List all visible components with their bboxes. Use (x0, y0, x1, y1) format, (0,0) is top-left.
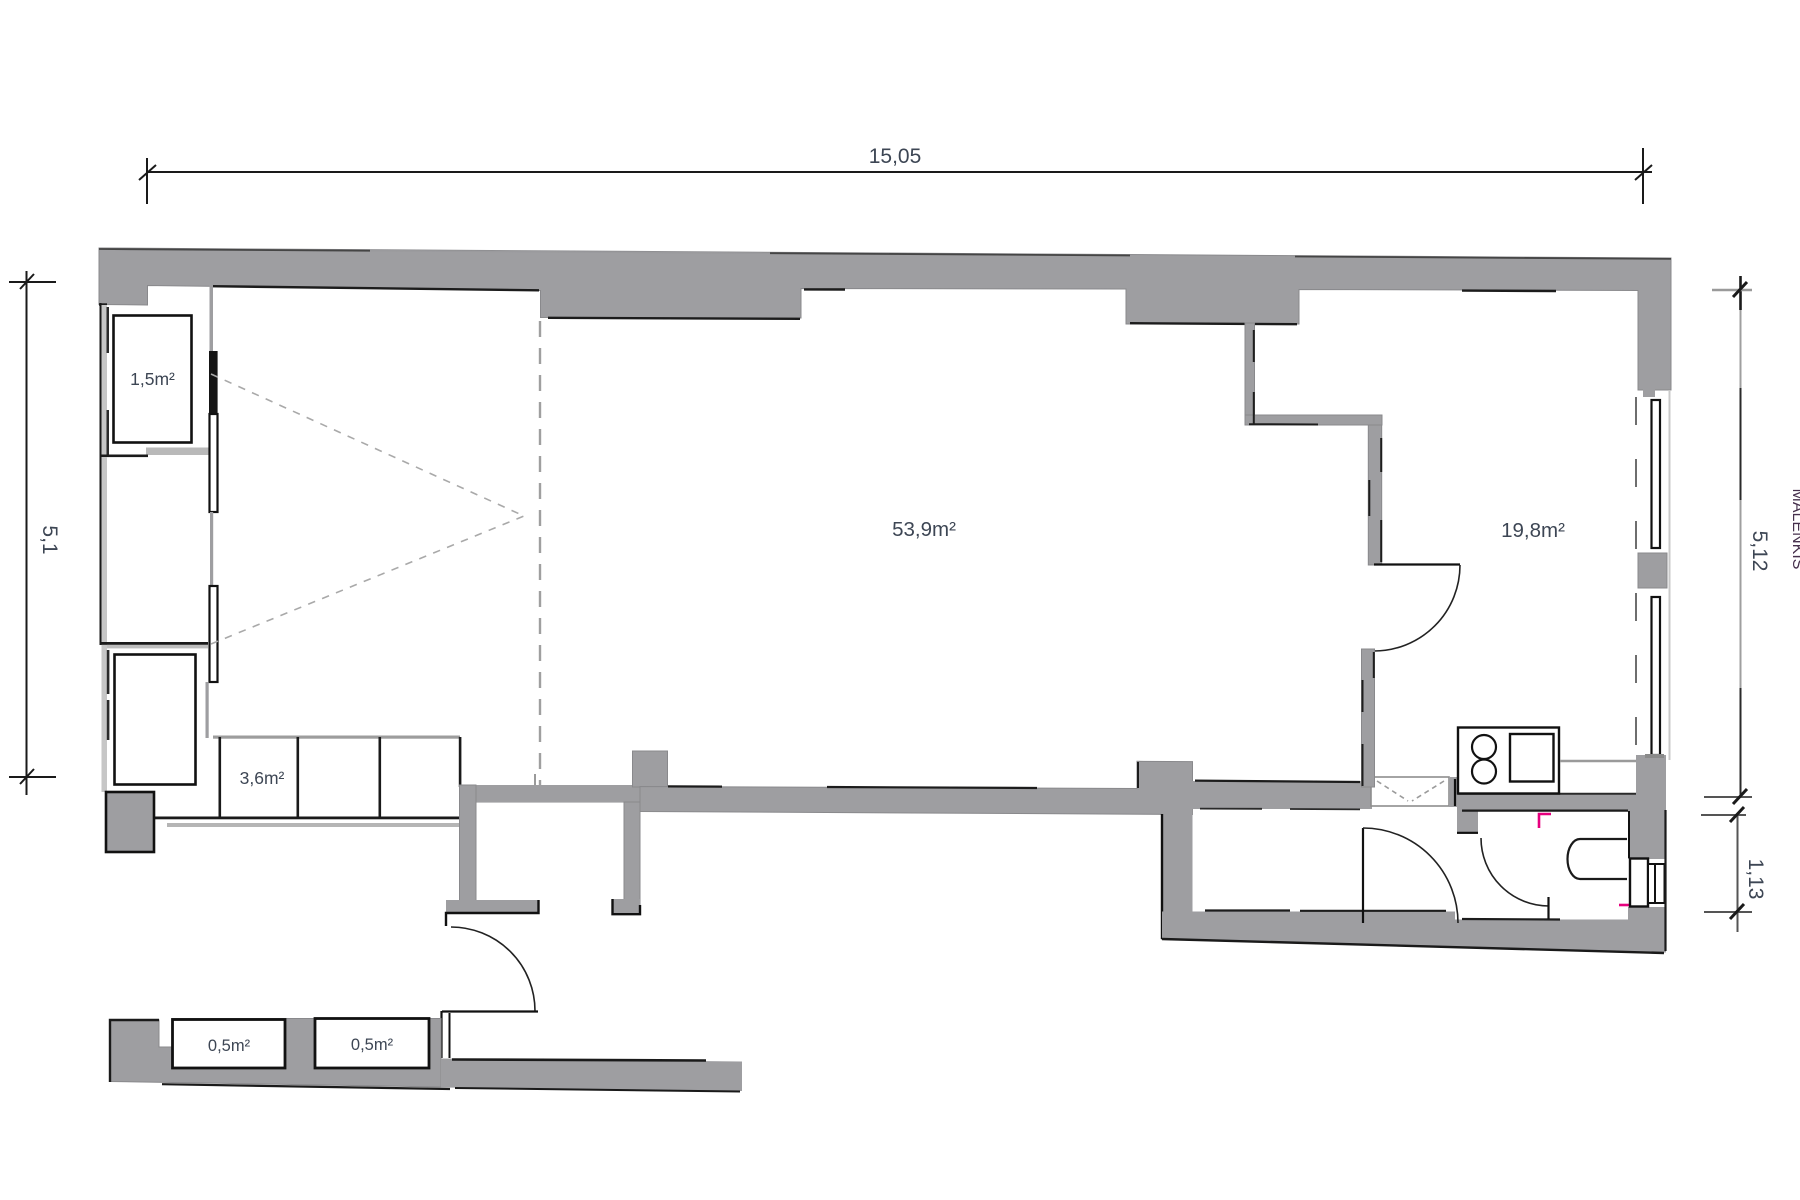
svg-text:19,8m²: 19,8m² (1501, 519, 1565, 542)
svg-text:1,13: 1,13 (1744, 859, 1767, 900)
svg-text:1,5m²: 1,5m² (130, 369, 175, 389)
svg-text:53,9m²: 53,9m² (892, 518, 956, 541)
svg-text:5,1: 5,1 (38, 525, 61, 554)
svg-text:0,5m²: 0,5m² (351, 1036, 394, 1054)
svg-text:15,05: 15,05 (869, 145, 922, 168)
svg-text:0,5m²: 0,5m² (208, 1037, 251, 1055)
svg-text:5,12: 5,12 (1748, 531, 1771, 572)
svg-text:MALENKIS: MALENKIS (1789, 489, 1800, 570)
svg-text:3,6m²: 3,6m² (240, 768, 285, 788)
